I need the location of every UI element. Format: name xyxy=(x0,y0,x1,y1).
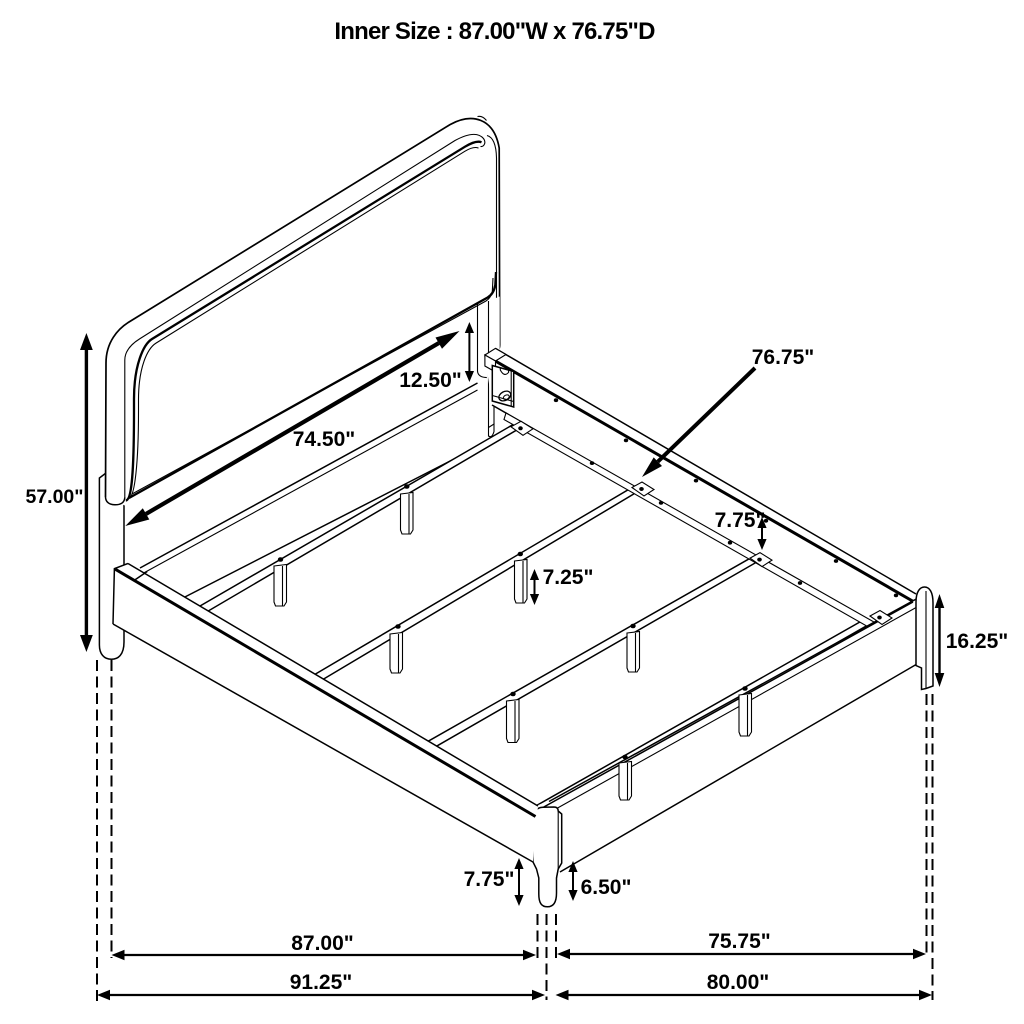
svg-text:57.00": 57.00" xyxy=(25,486,83,508)
svg-text:7.75": 7.75" xyxy=(464,868,515,891)
svg-text:76.75": 76.75" xyxy=(752,346,815,369)
svg-text:16.25": 16.25" xyxy=(946,630,1009,653)
svg-text:80.00": 80.00" xyxy=(707,971,770,994)
svg-text:7.75": 7.75" xyxy=(715,509,766,532)
svg-text:7.25": 7.25" xyxy=(543,566,594,589)
svg-text:75.75": 75.75" xyxy=(708,930,771,953)
svg-text:87.00": 87.00" xyxy=(291,932,354,955)
svg-text:Inner Size : 87.00"W x 76.75"D: Inner Size : 87.00"W x 76.75"D xyxy=(334,18,655,45)
svg-text:74.50": 74.50" xyxy=(293,428,356,451)
svg-text:12.50": 12.50" xyxy=(399,369,462,392)
svg-text:6.50": 6.50" xyxy=(581,876,632,899)
svg-text:91.25": 91.25" xyxy=(290,971,353,994)
